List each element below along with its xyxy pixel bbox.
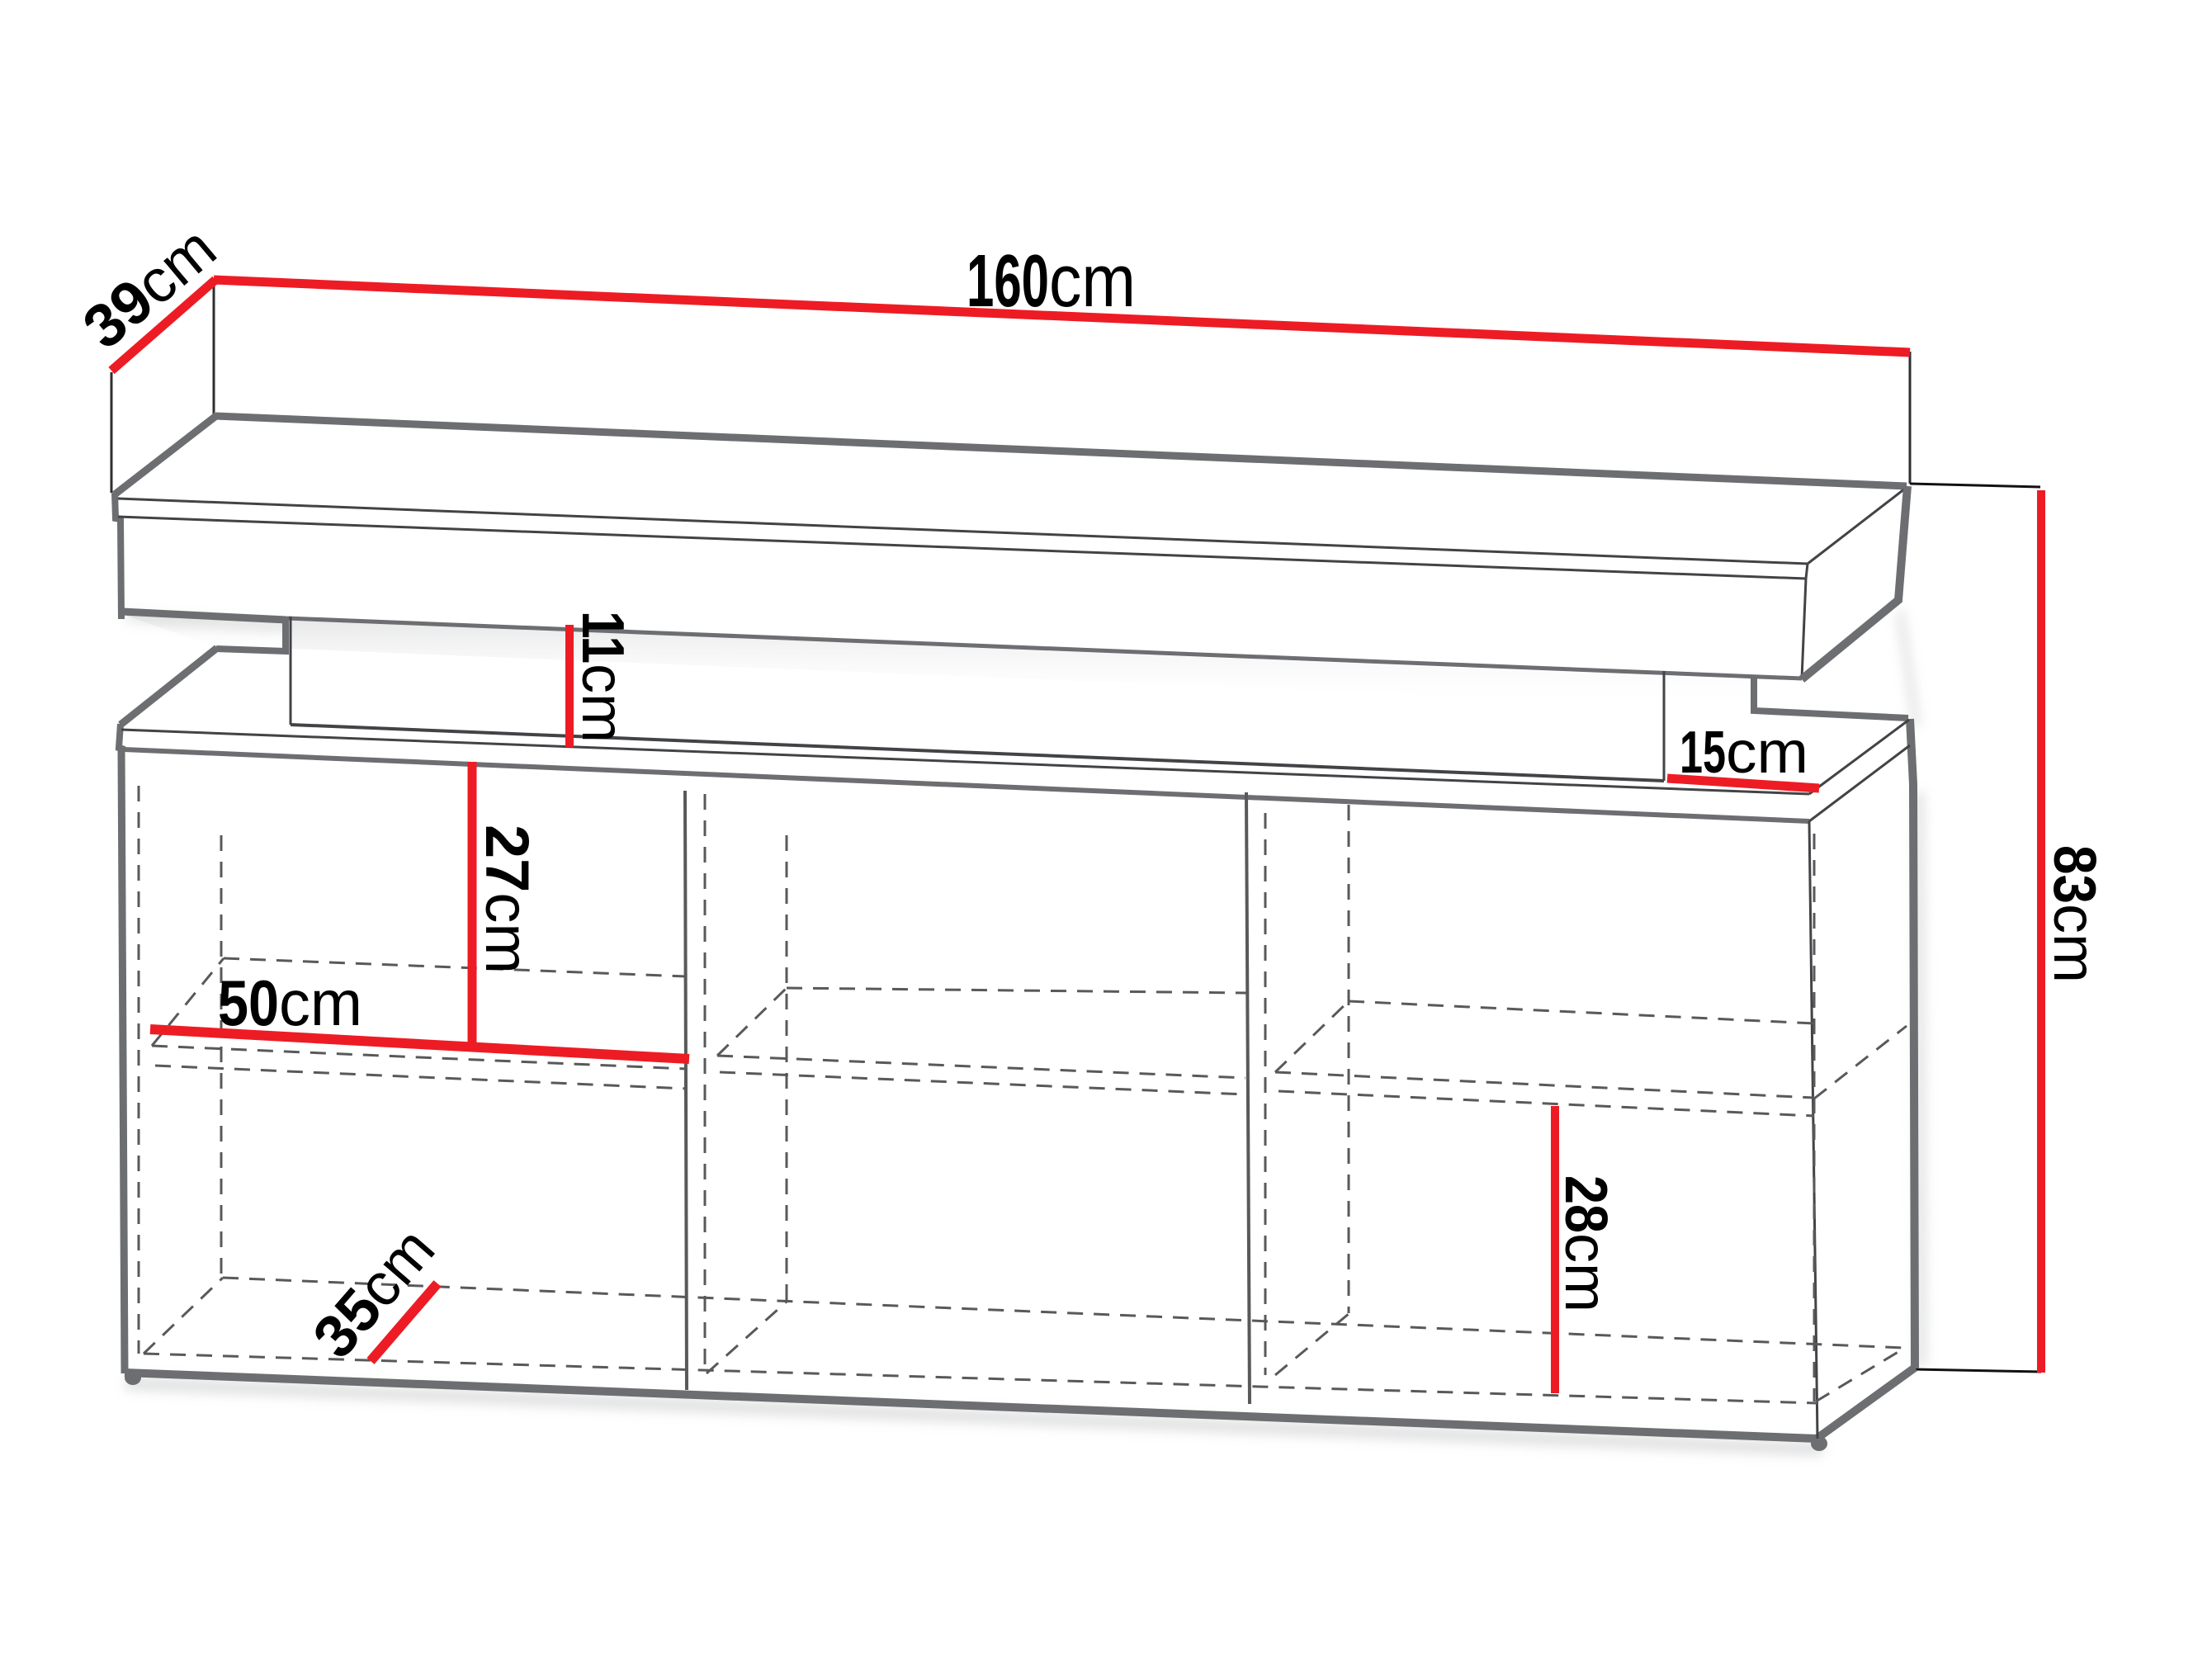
svg-text:50cm: 50cm <box>218 967 362 1039</box>
svg-text:160cm: 160cm <box>967 240 1136 323</box>
svg-text:83cm: 83cm <box>2041 845 2107 983</box>
svg-text:27cm: 27cm <box>473 825 541 974</box>
svg-text:28cm: 28cm <box>1553 1175 1619 1312</box>
svg-text:11cm: 11cm <box>570 611 636 743</box>
svg-text:15cm: 15cm <box>1680 720 1808 786</box>
